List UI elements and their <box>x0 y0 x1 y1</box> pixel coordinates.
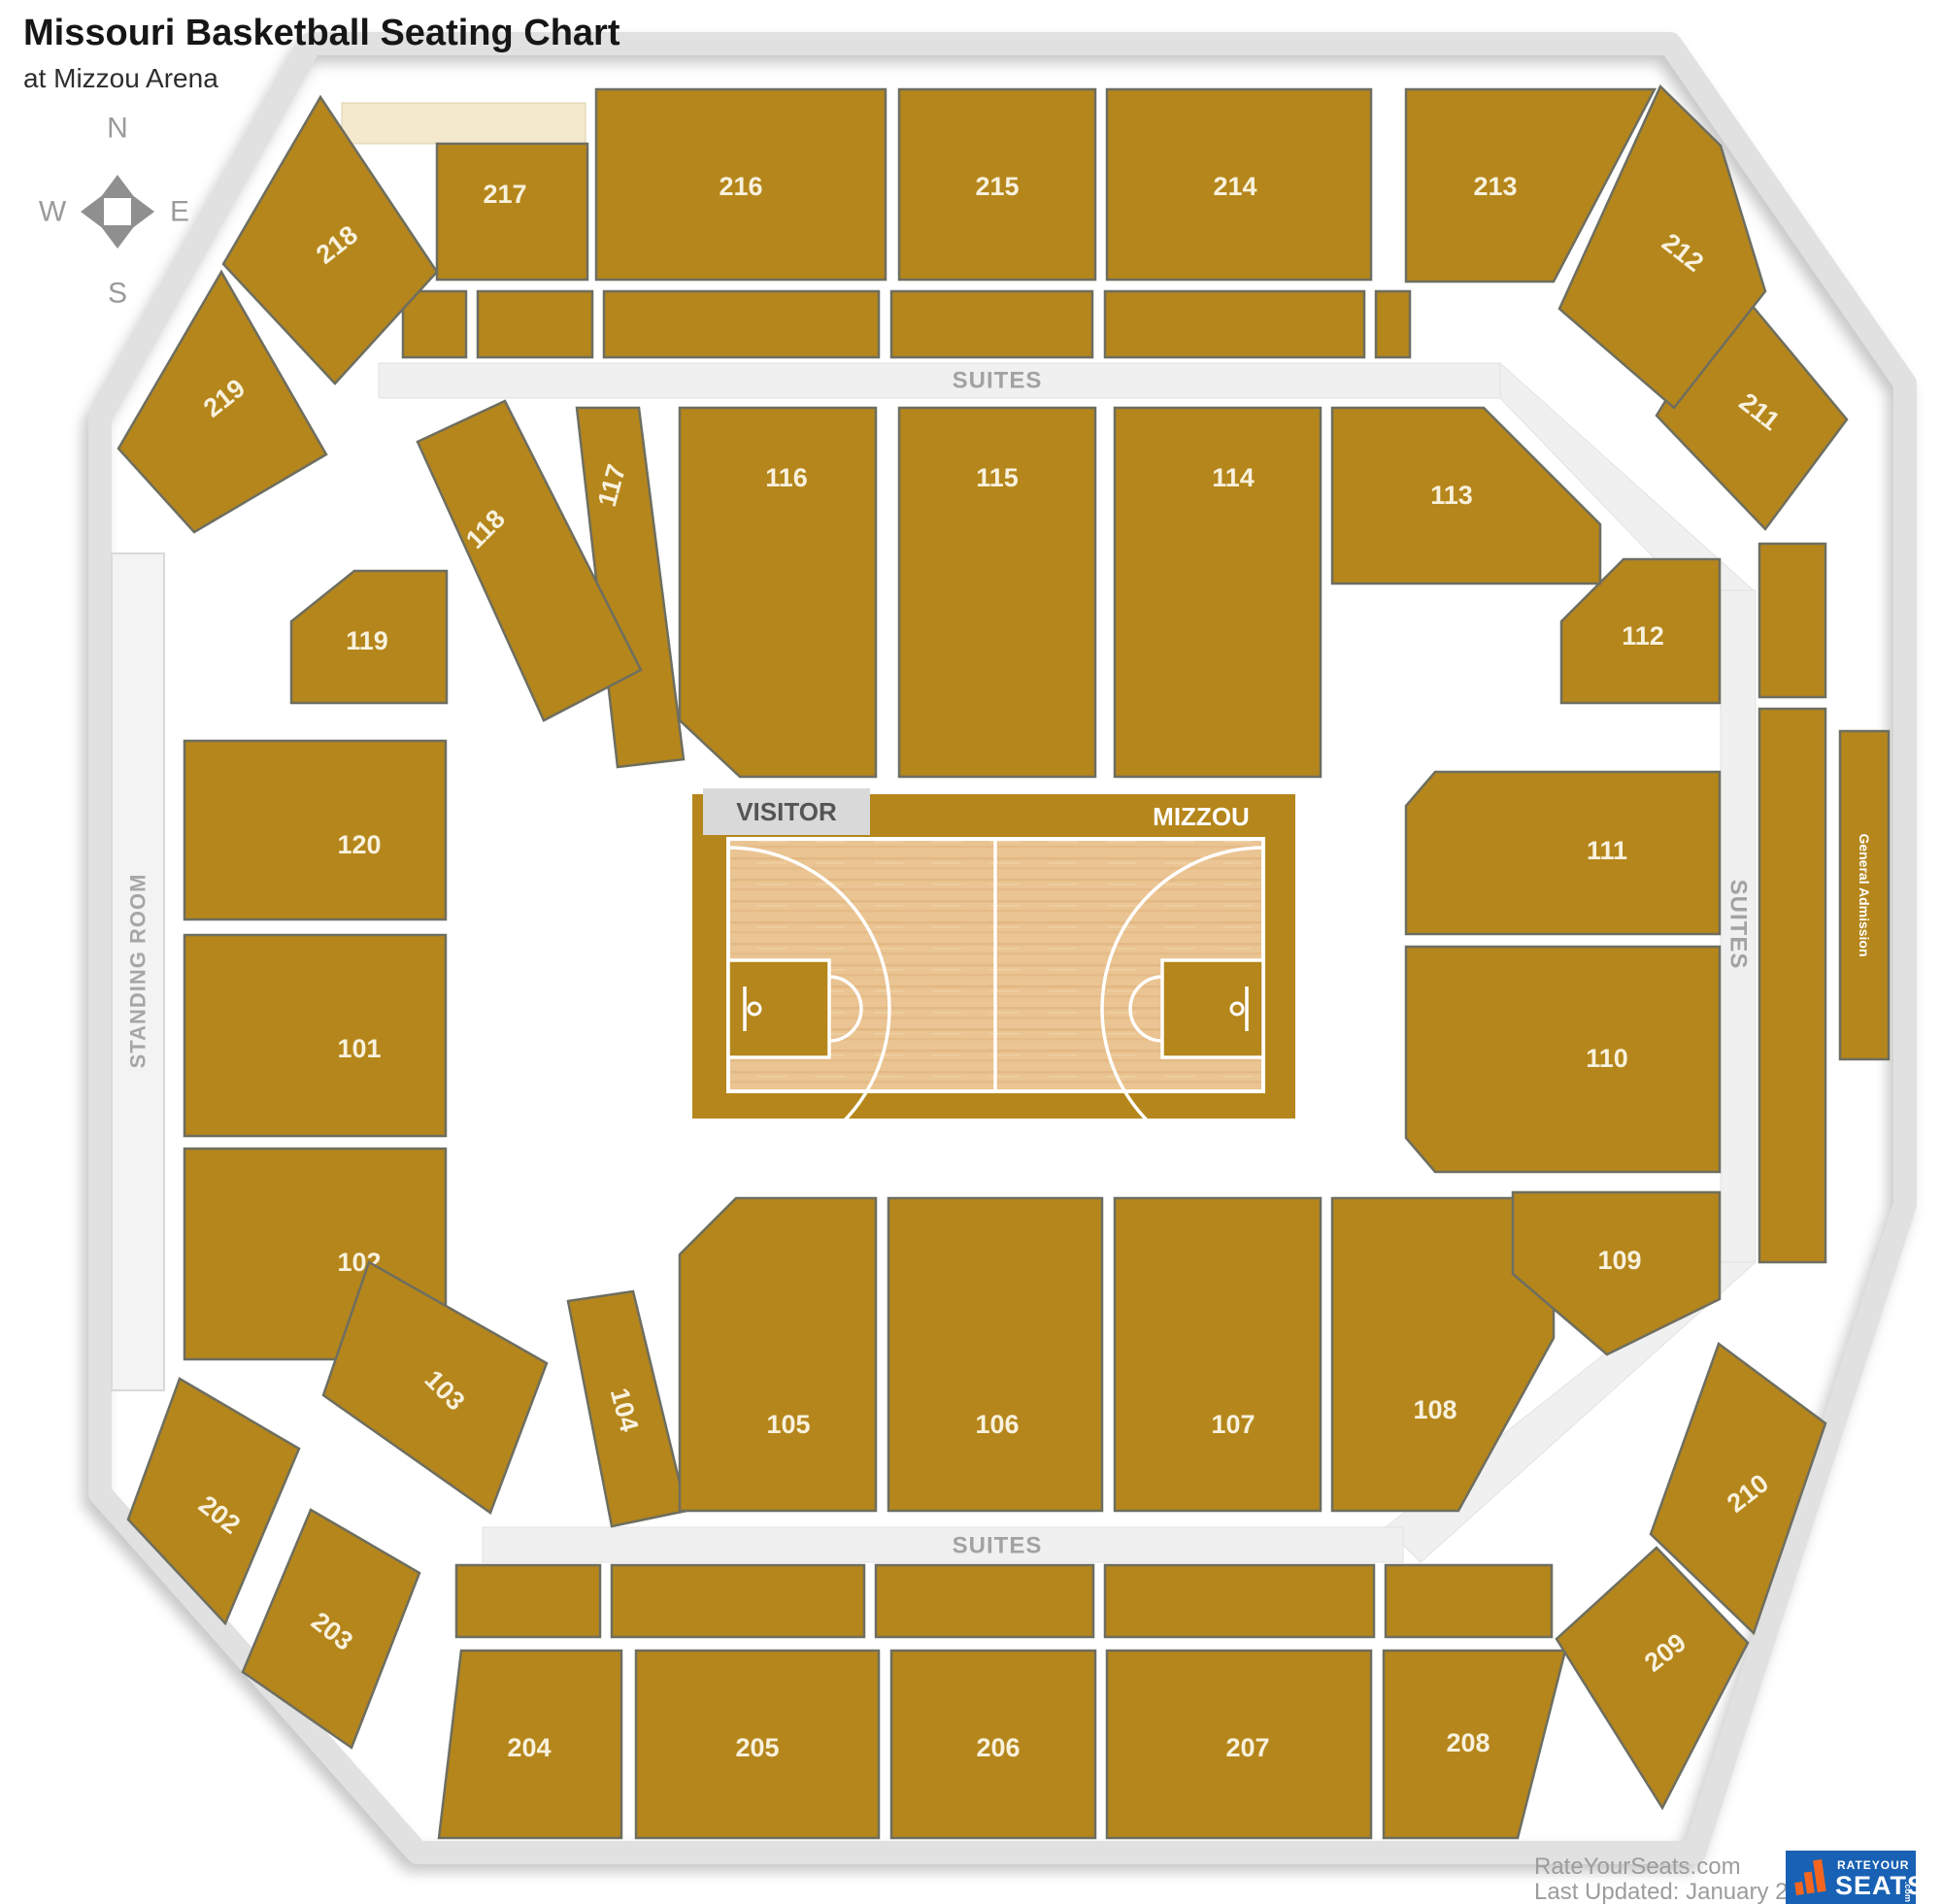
section-label-113: 113 <box>1430 481 1473 510</box>
section-label-215: 215 <box>975 172 1019 201</box>
section-label-112: 112 <box>1622 621 1664 651</box>
general-admission-label: General Admission <box>1857 833 1872 956</box>
section-label-108: 108 <box>1413 1395 1456 1424</box>
logo-text-dotcom: .com <box>1903 1882 1913 1902</box>
section-label-207: 207 <box>1225 1733 1269 1762</box>
footer: RateYourSeats.com Last Updated: January … <box>1534 1851 1925 1904</box>
standing-room-label: STANDING ROOM <box>126 874 151 1069</box>
suites-right-label: SUITES <box>1725 880 1752 970</box>
suites-band-bottom <box>483 1527 1403 1562</box>
section-label-120: 120 <box>337 830 381 859</box>
section-label-119: 119 <box>346 626 388 655</box>
compass-north-letter: N <box>107 113 128 145</box>
suites-bottom-label: SUITES <box>953 1533 1043 1559</box>
seating-map: STANDING ROOM General Admission 10110210… <box>0 0 1942 1904</box>
section-101[interactable] <box>184 935 446 1136</box>
compass-north-arrow-icon <box>100 175 135 198</box>
section-label-216: 216 <box>719 172 762 201</box>
page-title: Missouri Basketball Seating Chart <box>23 13 620 53</box>
section-120[interactable] <box>184 741 446 919</box>
section-label-106: 106 <box>975 1410 1019 1439</box>
page-subtitle: at Mizzou Arena <box>23 63 218 93</box>
section-107[interactable] <box>1115 1198 1321 1511</box>
general-admission-strip[interactable]: General Admission <box>1840 731 1889 1059</box>
compass-east-letter: E <box>170 196 189 228</box>
section-label-105: 105 <box>766 1410 810 1439</box>
rateyourseats-logo[interactable]: RATEYOUR SEATS .com <box>1786 1851 1925 1904</box>
suites-band-top <box>379 363 1500 398</box>
section-label-114: 114 <box>1212 463 1255 492</box>
basketball-court: VISITOR MIZZOU <box>692 788 1295 1170</box>
footer-site-link[interactable]: RateYourSeats.com <box>1534 1854 1741 1880</box>
section-label-111: 111 <box>1587 836 1627 865</box>
section-111[interactable] <box>1406 772 1720 934</box>
compass-west-arrow-icon <box>81 194 104 229</box>
visitor-bench-label: VISITOR <box>736 797 837 826</box>
suites-top-label: SUITES <box>953 368 1043 394</box>
section-label-204: 204 <box>507 1733 551 1762</box>
section-label-214: 214 <box>1213 172 1256 201</box>
logo-text-top: RATEYOUR <box>1837 1858 1909 1872</box>
section-105[interactable] <box>680 1198 876 1511</box>
section-217[interactable] <box>437 144 587 280</box>
compass-south-letter: S <box>108 278 127 310</box>
section-label-110: 110 <box>1586 1044 1628 1073</box>
compass-east-arrow-icon <box>131 194 154 229</box>
section-label-107: 107 <box>1211 1410 1255 1439</box>
section-label-115: 115 <box>976 463 1019 492</box>
section-label-109: 109 <box>1597 1246 1641 1275</box>
section-label-116: 116 <box>765 463 808 492</box>
section-label-205: 205 <box>735 1733 779 1762</box>
compass-west-letter: W <box>39 196 67 228</box>
seating-chart-page: STANDING ROOM General Admission 10110210… <box>0 0 1942 1904</box>
section-106[interactable] <box>888 1198 1102 1511</box>
section-label-101: 101 <box>337 1034 381 1063</box>
compass-south-arrow-icon <box>100 225 135 249</box>
section-label-206: 206 <box>976 1733 1020 1762</box>
beige-section <box>342 103 586 144</box>
section-110[interactable] <box>1406 947 1720 1172</box>
section-label-208: 208 <box>1446 1728 1490 1757</box>
section-label-217: 217 <box>483 180 526 209</box>
standing-room-strip[interactable]: STANDING ROOM <box>112 553 164 1390</box>
section-label-213: 213 <box>1473 172 1517 201</box>
home-bench-label: MIZZOU <box>1153 802 1250 831</box>
